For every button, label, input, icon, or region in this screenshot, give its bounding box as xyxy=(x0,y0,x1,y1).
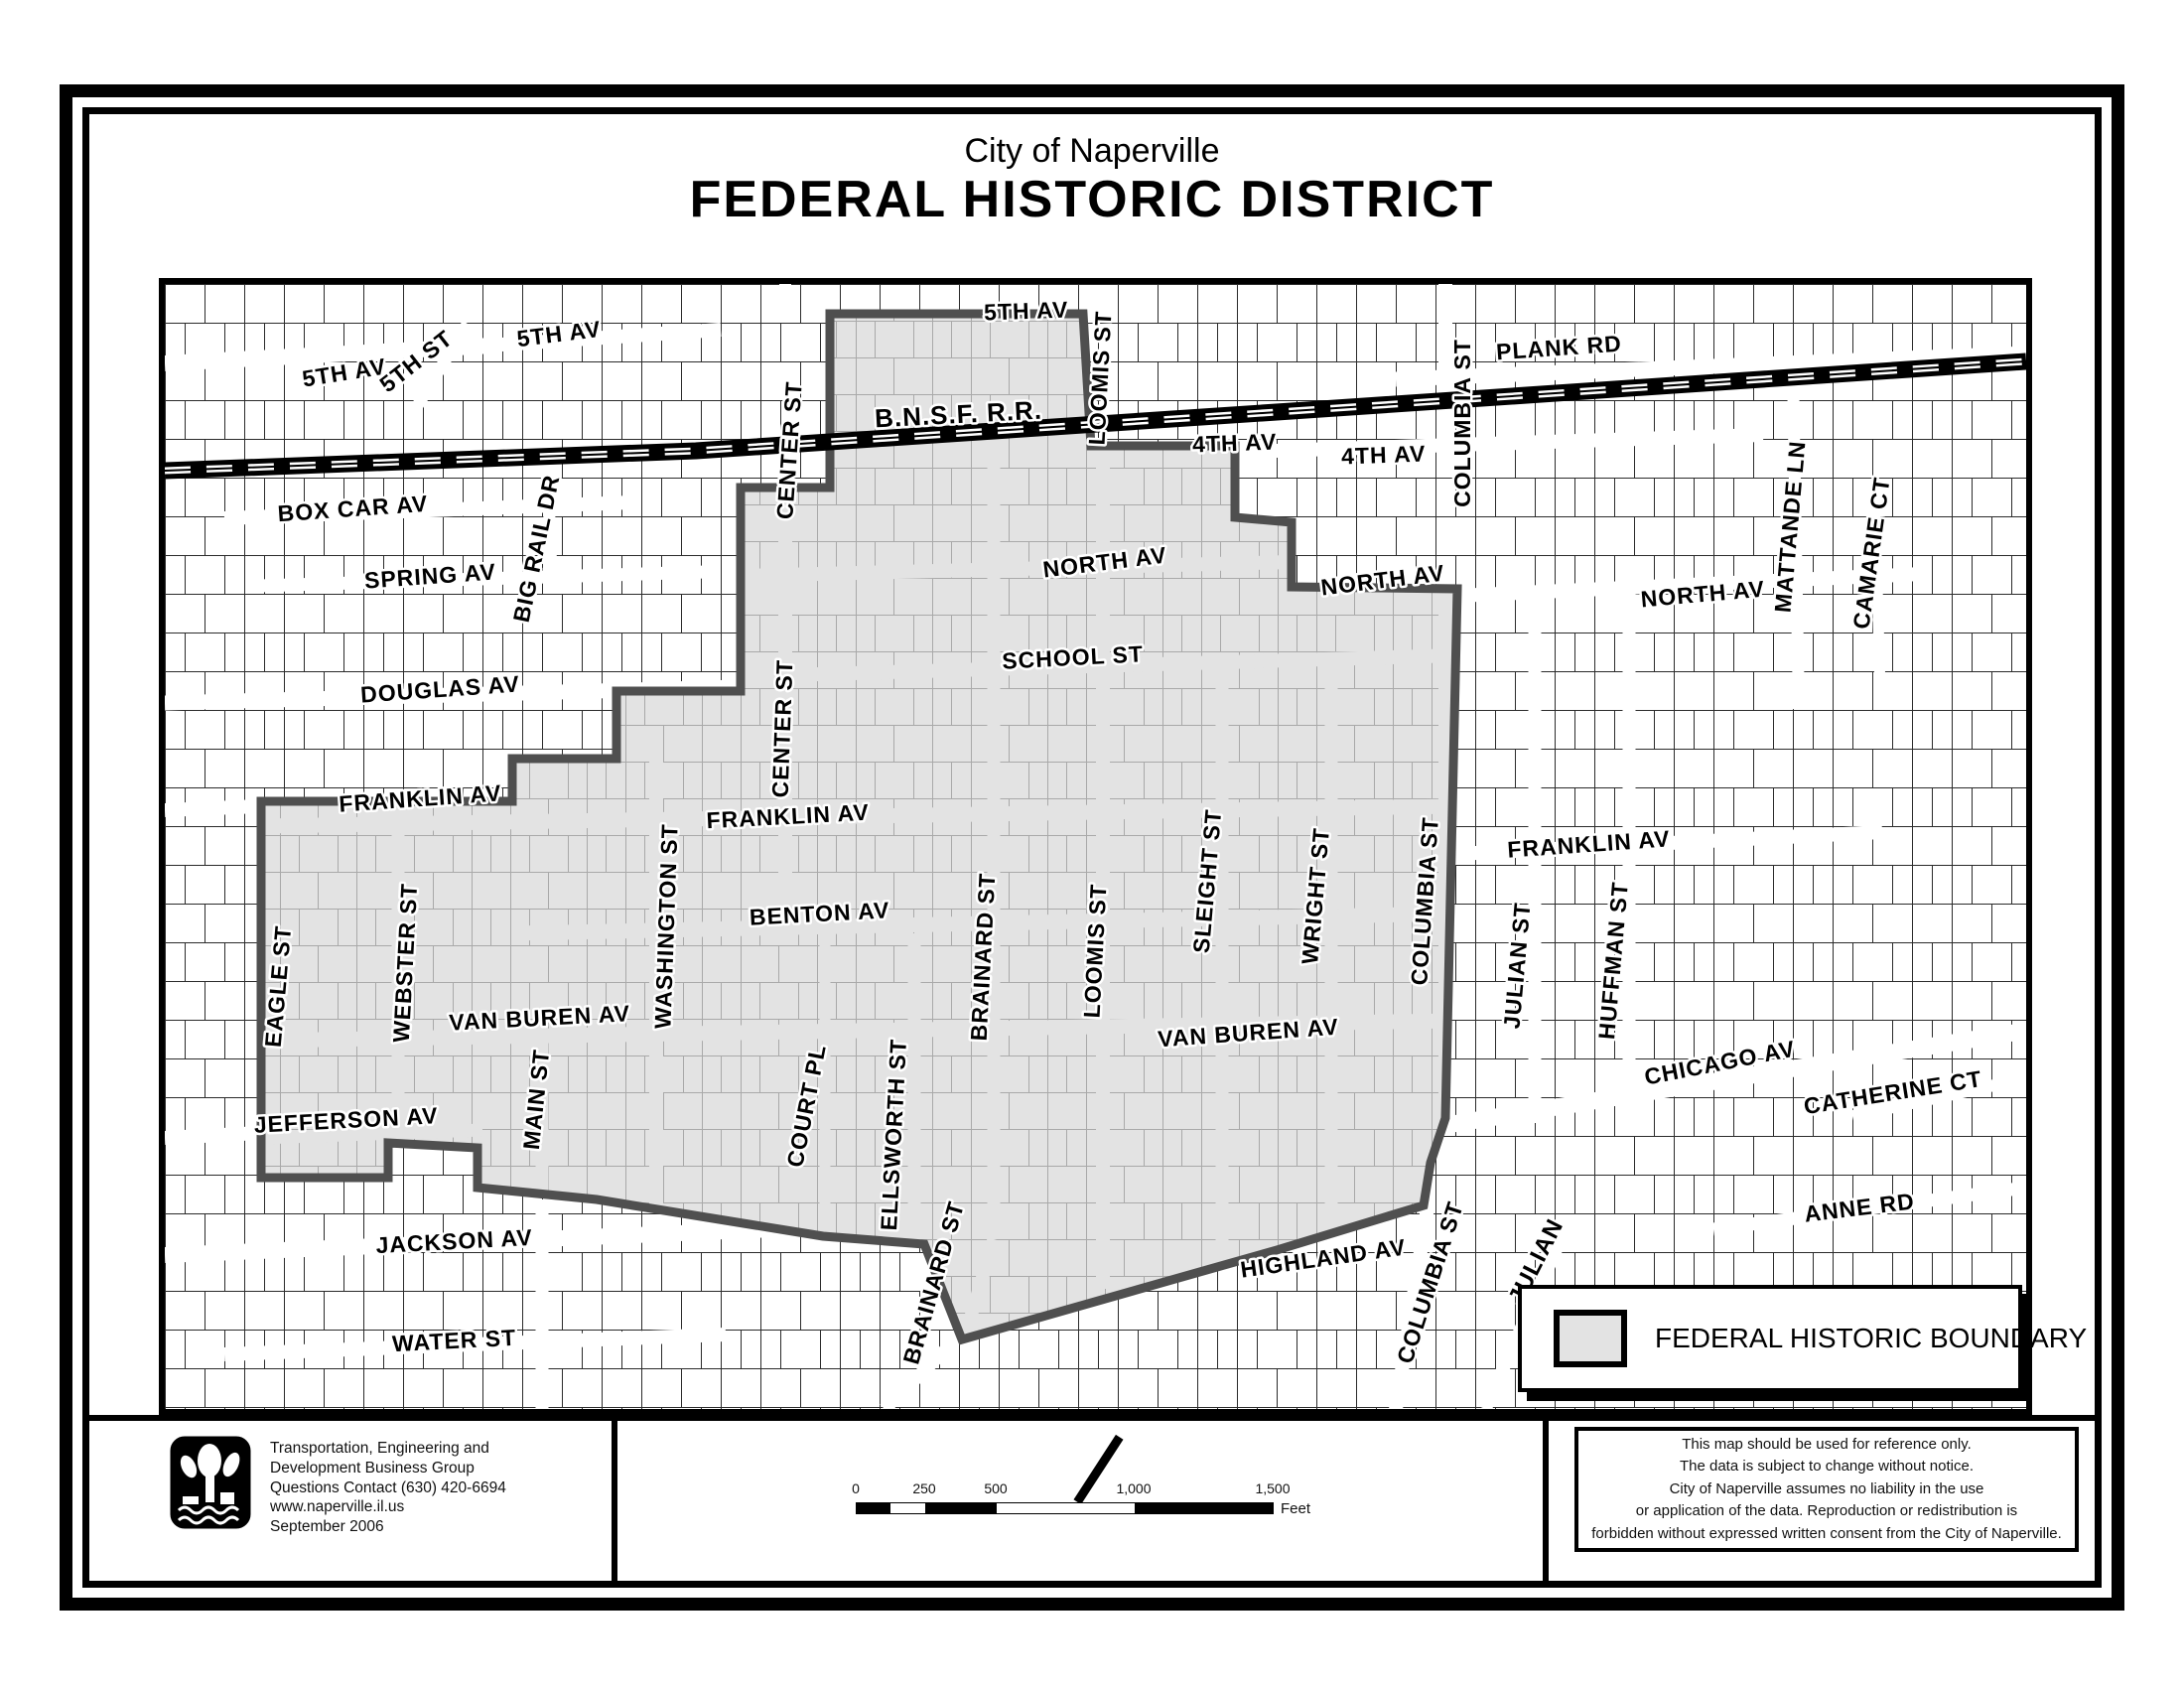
scalebar-segment xyxy=(1135,1503,1273,1513)
scale-tick-0: 0 xyxy=(826,1480,886,1500)
disclaimer-box: This map should be used for reference on… xyxy=(1574,1427,2079,1552)
scalebar xyxy=(856,1502,1274,1514)
footer-divider-1 xyxy=(612,1421,617,1581)
street-label-center-st: CENTER ST xyxy=(767,659,798,798)
disclaimer-line: forbidden without expressed written cons… xyxy=(1578,1523,2075,1546)
footer-divider-2 xyxy=(1543,1421,1549,1581)
agency-line: www.naperville.il.us xyxy=(270,1497,506,1517)
legend-swatch xyxy=(1554,1310,1627,1367)
scalebar-segment xyxy=(857,1503,890,1513)
scale-tick-1000: 1,000 xyxy=(1104,1480,1163,1500)
map-canvas: 5TH AV5TH ST5TH AV5TH AVPLANK RDB.N.S.F.… xyxy=(159,278,2032,1415)
street-label-4th-av: 4TH AV xyxy=(1341,441,1427,470)
map-drawing: 5TH AV5TH ST5TH AV5TH AVPLANK RDB.N.S.F.… xyxy=(165,284,2026,1409)
street-label-columbia-st: COLUMBIA ST xyxy=(1449,339,1475,507)
agency-line: Questions Contact (630) 420-6694 xyxy=(270,1478,506,1498)
scalebar-segment xyxy=(890,1503,925,1513)
scale-tick-1500: 1,500 xyxy=(1243,1480,1302,1500)
street-label-5th-av: 5TH AV xyxy=(984,297,1069,326)
disclaimer-line: This map should be used for reference on… xyxy=(1578,1434,2075,1457)
scale-tick-500: 500 xyxy=(966,1480,1025,1500)
page: { "title": { "line1": "City of Napervill… xyxy=(0,0,2184,1688)
agency-info: Transportation, Engineering andDevelopme… xyxy=(270,1439,506,1537)
scale-tick-250: 250 xyxy=(894,1480,954,1500)
agency-line: Transportation, Engineering and xyxy=(270,1439,506,1459)
map-subtitle: City of Naperville xyxy=(89,132,2095,171)
inner-frame: City of Naperville FEDERAL HISTORIC DIST… xyxy=(82,107,2102,1588)
disclaimer-line: The data is subject to change without no… xyxy=(1578,1456,2075,1478)
legend-label: FEDERAL HISTORIC BOUNDARY xyxy=(1655,1323,2087,1354)
agency-line: Development Business Group xyxy=(270,1459,506,1478)
footer-divider-top xyxy=(89,1415,2095,1421)
outer-frame: City of Naperville FEDERAL HISTORIC DIST… xyxy=(60,84,2124,1611)
scalebar-segment xyxy=(925,1503,997,1513)
map-sheet: City of Naperville FEDERAL HISTORIC DIST… xyxy=(89,114,2095,1581)
page-title: FEDERAL HISTORIC DISTRICT xyxy=(89,170,2095,229)
naperville-logo xyxy=(169,1435,252,1530)
disclaimer-line: or application of the data. Reproduction… xyxy=(1578,1500,2075,1523)
legend-box: FEDERAL HISTORIC BOUNDARY xyxy=(1518,1285,2022,1392)
scalebar-unit: Feet xyxy=(1281,1500,1310,1517)
scalebar-segment xyxy=(997,1503,1135,1513)
street-label-4th-av: 4TH AV xyxy=(1192,429,1278,458)
agency-line: September 2006 xyxy=(270,1517,506,1537)
disclaimer-line: City of Naperville assumes no liability … xyxy=(1578,1478,2075,1501)
